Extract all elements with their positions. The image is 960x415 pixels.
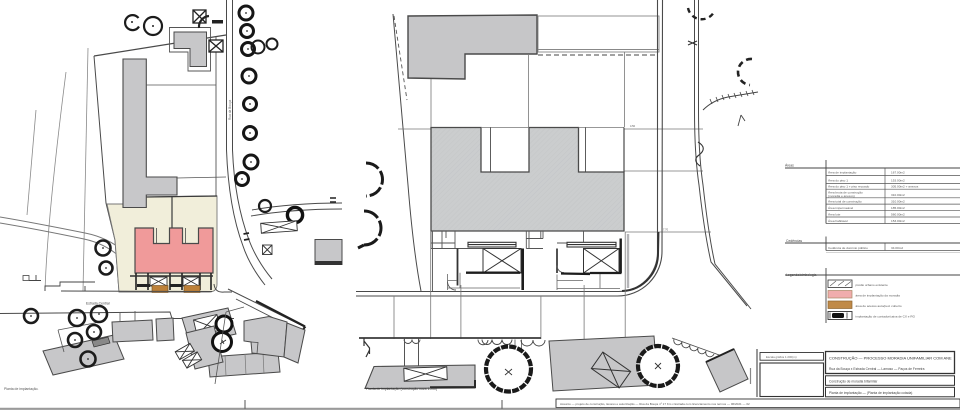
svg-text:Área do piso 1 + piso recuado: Área do piso 1 + piso recuado bbox=[828, 185, 869, 189]
svg-text:Rua da Bouça: Rua da Bouça bbox=[228, 100, 232, 120]
svg-text:Planta de implantação (constru: Planta de implantação (construção nova 1… bbox=[366, 387, 437, 391]
svg-text:Escala gráfica 1:200(m): Escala gráfica 1:200(m) bbox=[766, 355, 797, 359]
svg-text:Área habitável: Área habitável bbox=[828, 219, 848, 223]
svg-text:implantação de contador/caixa: implantação de contador/caixa de CX e RG bbox=[856, 315, 916, 319]
svg-text:área de acesso auto/ped. cober: área de acesso auto/ped. coberto bbox=[856, 304, 902, 308]
svg-text:Área total de construção: Área total de construção bbox=[828, 200, 862, 204]
svg-text:167.00m2: 167.00m2 bbox=[891, 171, 905, 175]
svg-text:Planta de implantação — (Plant: Planta de implantação — (Planta de impla… bbox=[829, 391, 912, 395]
svg-text:Áreas: Áreas bbox=[785, 164, 794, 168]
svg-text:Cedência de domínio público: Cedência de domínio público bbox=[828, 246, 868, 250]
svg-text:7.70: 7.70 bbox=[663, 228, 669, 232]
svg-text:(moradia e anexos): (moradia e anexos) bbox=[828, 194, 855, 198]
svg-text:4.50: 4.50 bbox=[630, 124, 636, 128]
svg-text:34.00m2: 34.00m2 bbox=[891, 246, 903, 250]
svg-text:Assunto — projeto de construçã: Assunto — projeto de construção, lavores… bbox=[560, 402, 750, 406]
svg-text:310.00m2: 310.00m2 bbox=[891, 200, 905, 204]
svg-text:CONSTRUÇÃO — PROCESSO MORADIA: CONSTRUÇÃO — PROCESSO MORADIA UNIFAMILIA… bbox=[829, 356, 952, 361]
svg-text:Cedências: Cedências bbox=[786, 239, 802, 243]
svg-text:310.00m2: 310.00m2 bbox=[891, 193, 905, 197]
svg-text:Construção de moradia bifamili: Construção de moradia bifamiliar bbox=[829, 379, 878, 383]
svg-text:prédio urbano existente: prédio urbano existente bbox=[856, 283, 889, 287]
svg-text:Planta de implantação.: Planta de implantação. bbox=[4, 387, 39, 391]
svg-text:305.00m2 + anexos: 305.00m2 + anexos bbox=[891, 185, 919, 189]
svg-text:Área do piso 1: Área do piso 1 bbox=[828, 179, 848, 183]
svg-text:área de implantação da moradia: área de implantação da moradia bbox=[856, 294, 901, 298]
svg-text:Rua da Bouça x Estrada Central: Rua da Bouça x Estrada Central — Lamoso … bbox=[829, 367, 925, 371]
svg-text:Área lote: Área lote bbox=[828, 212, 841, 216]
svg-text:153.00m2: 153.00m2 bbox=[891, 179, 905, 183]
svg-text:560.00m2: 560.00m2 bbox=[891, 212, 905, 216]
svg-text:153.00m2: 153.00m2 bbox=[891, 219, 905, 223]
svg-text:Área de implantação: Área de implantação bbox=[828, 171, 857, 175]
svg-text:185.00m2: 185.00m2 bbox=[891, 206, 905, 210]
svg-text:Área impermeável: Área impermeável bbox=[828, 206, 853, 210]
